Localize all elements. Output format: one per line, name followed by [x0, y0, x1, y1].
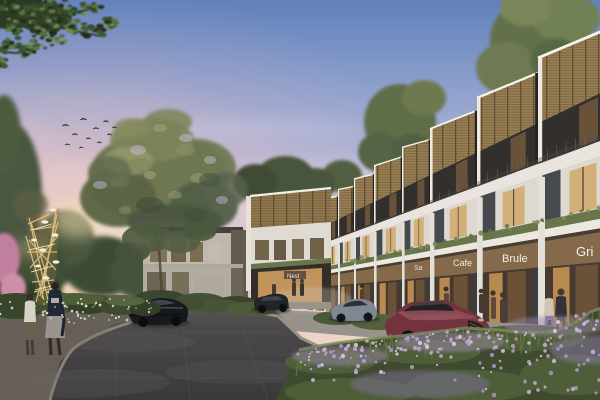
- svg-text:Brule: Brule: [502, 253, 528, 265]
- svg-text:Cafe: Cafe: [453, 258, 472, 268]
- svg-text:Sa: Sa: [414, 265, 423, 272]
- svg-text:Gri: Gri: [576, 244, 593, 259]
